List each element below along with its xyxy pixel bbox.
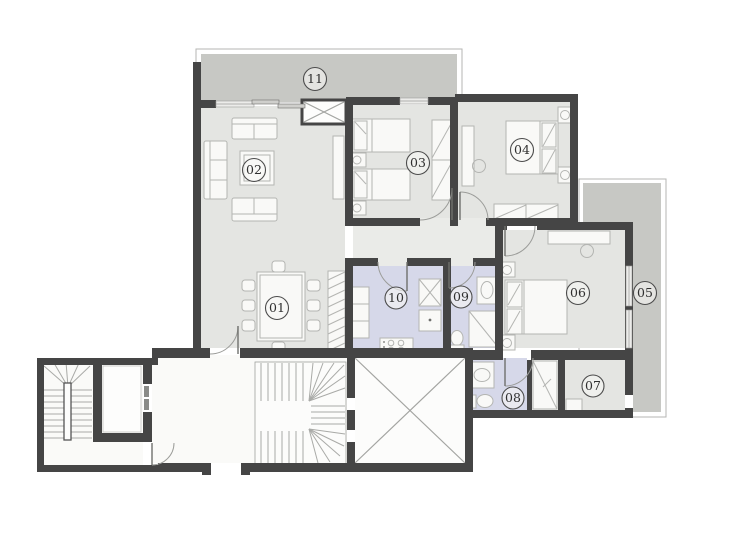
wardrobe — [494, 204, 558, 219]
sofa-three-seat-left — [204, 141, 227, 199]
toilet-bowl — [477, 395, 493, 408]
chair — [307, 280, 320, 291]
wardrobe — [432, 120, 452, 200]
dining-furniture — [242, 261, 345, 353]
hall-closet-hatched — [328, 271, 345, 351]
room-04-badge: 04 — [511, 139, 534, 162]
floor-plan-page: 01 02 03 04 05 06 07 08 — [0, 0, 732, 539]
room-03-label: 03 — [410, 155, 426, 170]
room-11-badge: 11 — [304, 68, 327, 91]
elevator-door-mark — [144, 399, 149, 410]
room-08-badge: 08 — [502, 387, 524, 409]
elevator-door-mark — [144, 386, 149, 397]
chair — [272, 261, 285, 272]
elevator-cab — [103, 366, 141, 432]
room-07-badge: 07 — [582, 375, 604, 397]
chair — [307, 320, 320, 331]
tv-unit — [333, 136, 344, 199]
toilet-bowl — [451, 331, 463, 346]
floor-plan-drawing: 01 02 03 04 05 06 07 08 — [0, 0, 732, 539]
chair — [242, 280, 255, 291]
doormat — [566, 399, 582, 411]
room-07-label: 07 — [585, 378, 601, 393]
room-03-badge: 03 — [407, 152, 430, 175]
balcony-11-terrace — [196, 49, 462, 102]
stair-divider — [64, 383, 71, 440]
room-02-label: 02 — [246, 162, 262, 177]
room-01-badge: 01 — [266, 297, 289, 320]
knob — [429, 319, 432, 322]
room-06-badge: 06 — [567, 282, 590, 305]
pillow — [354, 171, 367, 198]
desk — [548, 231, 610, 244]
staircase-center — [255, 362, 346, 464]
room-09-badge: 09 — [450, 286, 472, 308]
room-08-label: 08 — [505, 390, 521, 405]
pillow — [354, 121, 367, 150]
kitchen-counter — [352, 287, 369, 338]
chair — [242, 300, 255, 311]
room-05-label: 05 — [637, 285, 653, 300]
room-06-label: 06 — [570, 285, 586, 300]
duct-shaft-box — [302, 100, 346, 124]
room-04-label: 04 — [514, 142, 530, 157]
room-09-label: 09 — [453, 289, 469, 304]
room-10-label: 10 — [388, 290, 404, 305]
room-11-label: 11 — [307, 71, 323, 86]
room-01-label: 01 — [269, 300, 285, 315]
chair — [242, 320, 255, 331]
room-02-badge: 02 — [243, 159, 266, 182]
desk — [462, 126, 474, 186]
room-10-badge: 10 — [385, 287, 407, 309]
room-05-badge: 05 — [634, 282, 657, 305]
chair — [307, 300, 320, 311]
